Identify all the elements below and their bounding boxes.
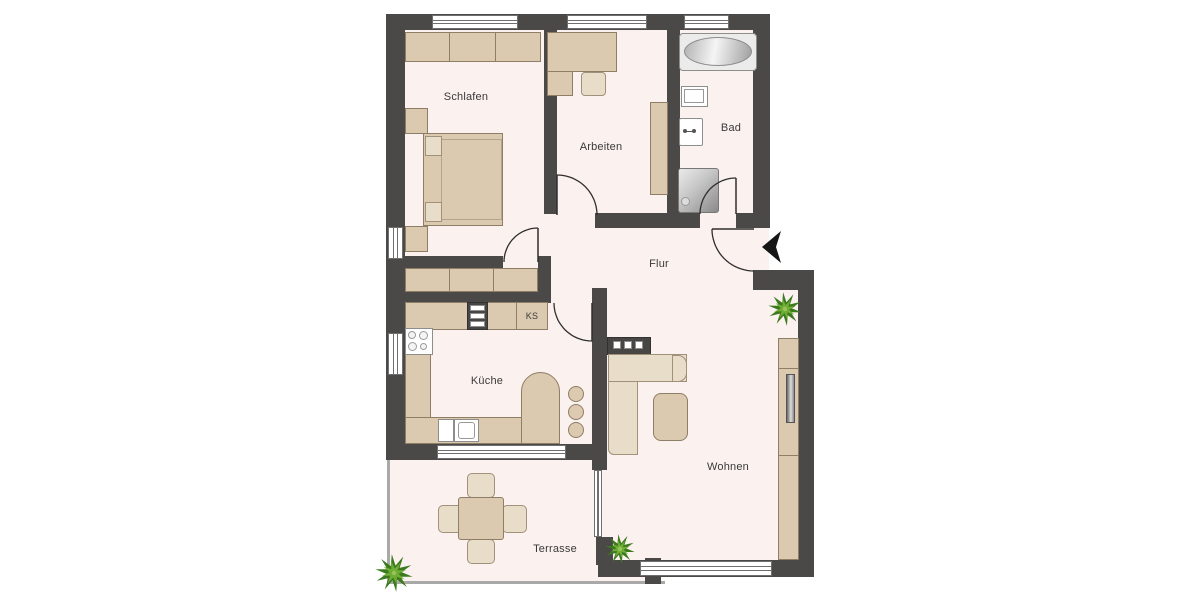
hall-sideboard (405, 268, 538, 292)
terrace-edge (387, 581, 665, 584)
coffee-table (653, 393, 688, 441)
room-label-wohnen: Wohnen (707, 461, 749, 473)
furniture-divider (779, 368, 798, 369)
drawer-front (624, 341, 632, 349)
room-label-bad: Bad (721, 122, 741, 134)
room-label-kueche: Küche (471, 375, 503, 387)
window-bad-top (684, 15, 729, 29)
bar-stool (568, 422, 584, 438)
room-label-flur: Flur (649, 258, 669, 270)
tv-lowboard (778, 338, 799, 560)
wall (538, 256, 551, 295)
terrace-chair (502, 505, 527, 533)
terrace-chair (467, 473, 495, 498)
wall (736, 213, 770, 228)
drawer-front (613, 341, 621, 349)
bar-counter (521, 372, 560, 444)
pillow (425, 202, 442, 222)
office-chair (581, 72, 606, 96)
wall (753, 270, 814, 290)
sink-basin (458, 422, 475, 439)
furniture-divider (449, 33, 450, 61)
shower-drain (681, 197, 690, 206)
toilet-icon-line (685, 131, 694, 132)
wardrobe (405, 32, 541, 62)
oven-drawer (470, 305, 485, 311)
terrace-chair (467, 539, 495, 564)
furniture-divider (449, 269, 450, 291)
terrace-table (458, 497, 504, 540)
stove-burner (408, 342, 417, 351)
room-label-schlafen: Schlafen (444, 91, 488, 103)
furniture-divider (495, 33, 496, 61)
window-arbeiten-top (567, 15, 647, 29)
shower (678, 168, 719, 213)
furniture-divider (493, 269, 494, 291)
bathtub-basin (684, 37, 752, 66)
bar-stool (568, 386, 584, 402)
window-wohnen-terrasse (594, 470, 602, 537)
window-kueche-left (388, 333, 403, 375)
bookshelf (650, 102, 668, 195)
nightstand (405, 226, 428, 252)
stove-burner (420, 343, 427, 350)
bar-stool (568, 404, 584, 420)
furniture-divider (516, 303, 517, 329)
window-kueche-bottom (437, 445, 566, 459)
wall (798, 288, 814, 577)
drawer-front (635, 341, 643, 349)
wall (596, 537, 613, 565)
room-label-terrasse: Terrasse (533, 543, 577, 555)
stove-burner (408, 331, 416, 339)
oven-drawer (470, 321, 485, 327)
stove-burner (419, 331, 428, 340)
nightstand (405, 108, 428, 134)
washbasin-inner (684, 89, 704, 103)
sofa-armrest (672, 355, 687, 382)
oven-drawer (470, 313, 485, 319)
window-schlafen-left (388, 227, 403, 259)
wall (595, 213, 700, 228)
window-schlafen-top (432, 15, 518, 29)
furniture-divider (779, 455, 798, 456)
fixture-label-fridge: KS (526, 311, 538, 321)
wall (592, 288, 607, 470)
desk (547, 32, 617, 72)
room-label-arbeiten: Arbeiten (580, 141, 623, 153)
sink-drainboard (438, 419, 454, 442)
window-wohnen-bottom (640, 561, 772, 576)
floorplan-canvas: Schlafen Arbeiten Bad Flur Küche Wohnen … (0, 0, 1200, 600)
terrace-edge (387, 458, 390, 584)
pillow (425, 136, 442, 156)
outside-area (769, 14, 814, 270)
duvet (441, 139, 502, 220)
tv (786, 374, 795, 423)
outside-area (660, 577, 814, 584)
wall (386, 256, 503, 268)
